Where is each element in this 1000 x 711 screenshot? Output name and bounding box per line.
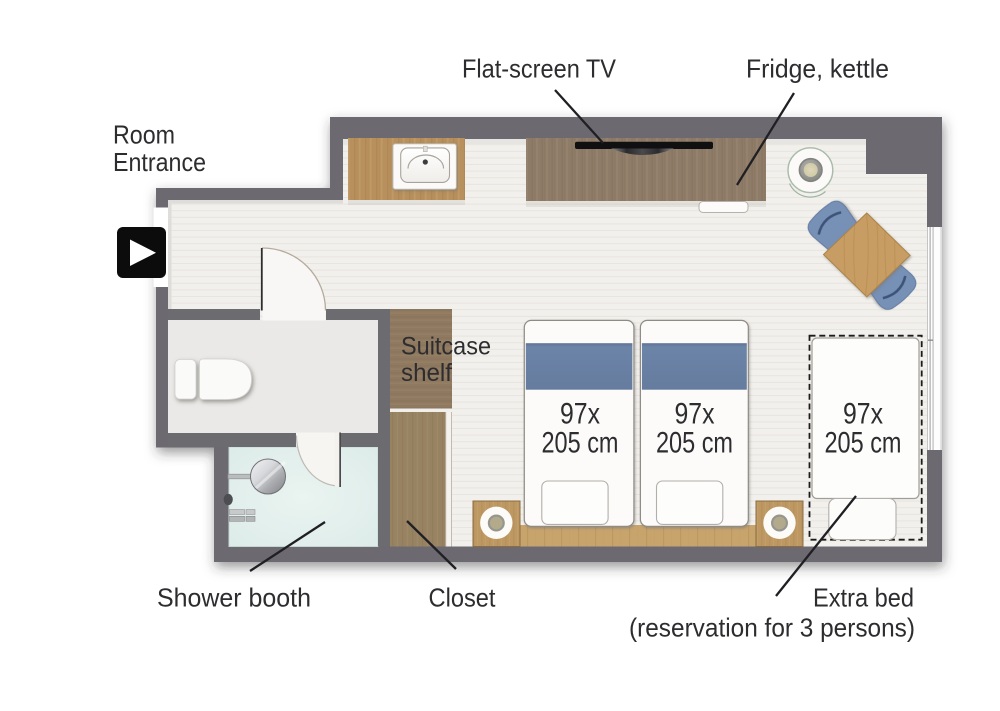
svg-text:205 cm: 205 cm — [656, 426, 733, 459]
svg-text:Fridge, kettle: Fridge, kettle — [746, 54, 889, 84]
svg-text:Entrance: Entrance — [113, 147, 206, 177]
svg-text:Closet: Closet — [429, 583, 497, 613]
svg-text:Shower booth: Shower booth — [157, 583, 311, 613]
svg-text:Suitcase: Suitcase — [401, 333, 491, 361]
svg-text:205 cm: 205 cm — [542, 426, 619, 459]
svg-text:Room: Room — [113, 120, 175, 150]
svg-text:205 cm: 205 cm — [825, 426, 902, 459]
svg-text:Flat-screen TV: Flat-screen TV — [462, 54, 617, 84]
svg-text:(reservation for 3 persons): (reservation for 3 persons) — [629, 613, 915, 643]
svg-text:shelf: shelf — [401, 359, 452, 387]
svg-text:Extra bed: Extra bed — [813, 583, 914, 613]
